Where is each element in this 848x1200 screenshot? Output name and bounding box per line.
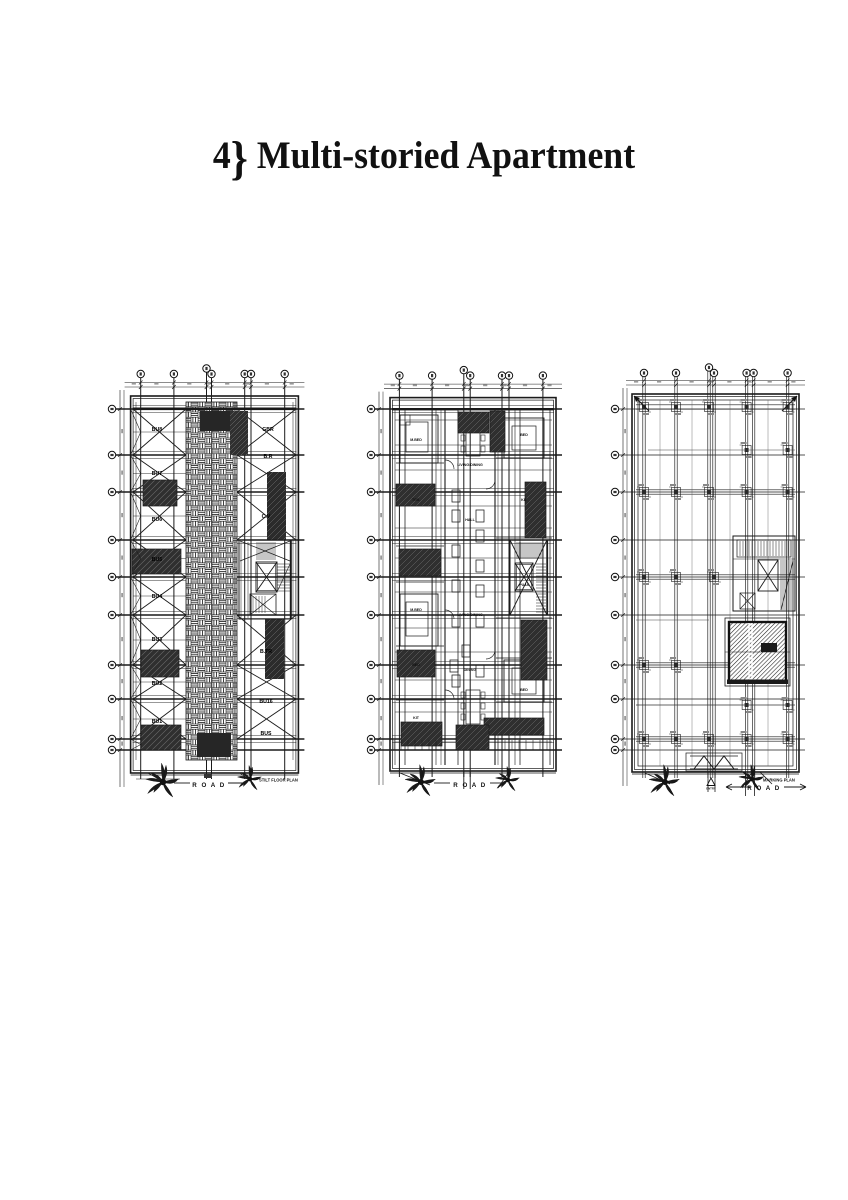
svg-text:KIT: KIT (413, 716, 420, 720)
svg-text:PUJA: PUJA (519, 583, 529, 587)
svg-text:DINING: DINING (464, 668, 477, 672)
svg-text:KIT: KIT (521, 498, 528, 502)
svg-text:GBR: GBR (262, 427, 274, 433)
svg-text:ENTRY: ENTRY (706, 787, 716, 791)
svg-text:LIVING/DINING: LIVING/DINING (457, 613, 483, 617)
svg-text:BU6: BU6 (152, 517, 162, 523)
svg-text:BU4: BU4 (152, 594, 162, 600)
svg-text:B.TR: B.TR (260, 649, 272, 655)
svg-text:C.V: C.V (262, 514, 271, 520)
svg-text:STILT FLOOR PLAN: STILT FLOOR PLAN (259, 778, 298, 783)
svg-text:MARKING PLAN: MARKING PLAN (763, 778, 795, 783)
svg-text:BU2: BU2 (152, 681, 162, 687)
svg-text:LIVING/DINING: LIVING/DINING (457, 463, 483, 467)
svg-text:BU3: BU3 (152, 637, 162, 643)
svg-text:TOIL: TOIL (412, 498, 421, 502)
svg-text:HALL: HALL (465, 518, 475, 522)
svg-text:BU7: BU7 (152, 471, 162, 477)
svg-text:BED: BED (520, 433, 528, 437)
svg-text:R O A D: R O A D (453, 782, 486, 789)
svg-text:BU5: BU5 (152, 557, 162, 563)
svg-text:B.R: B.R (264, 454, 273, 460)
svg-text:R O A D: R O A D (747, 785, 780, 792)
svg-text:M.BED: M.BED (410, 608, 422, 612)
svg-text:BED: BED (412, 663, 420, 667)
svg-text:BUS: BUS (261, 731, 272, 737)
svg-text:R O A D: R O A D (192, 782, 225, 789)
svg-text:BU1: BU1 (152, 719, 162, 725)
svg-text:BU16: BU16 (259, 699, 272, 705)
svg-text:BU8: BU8 (152, 427, 162, 433)
svg-text:BED: BED (520, 688, 528, 692)
svg-text:M.BED: M.BED (410, 438, 422, 442)
